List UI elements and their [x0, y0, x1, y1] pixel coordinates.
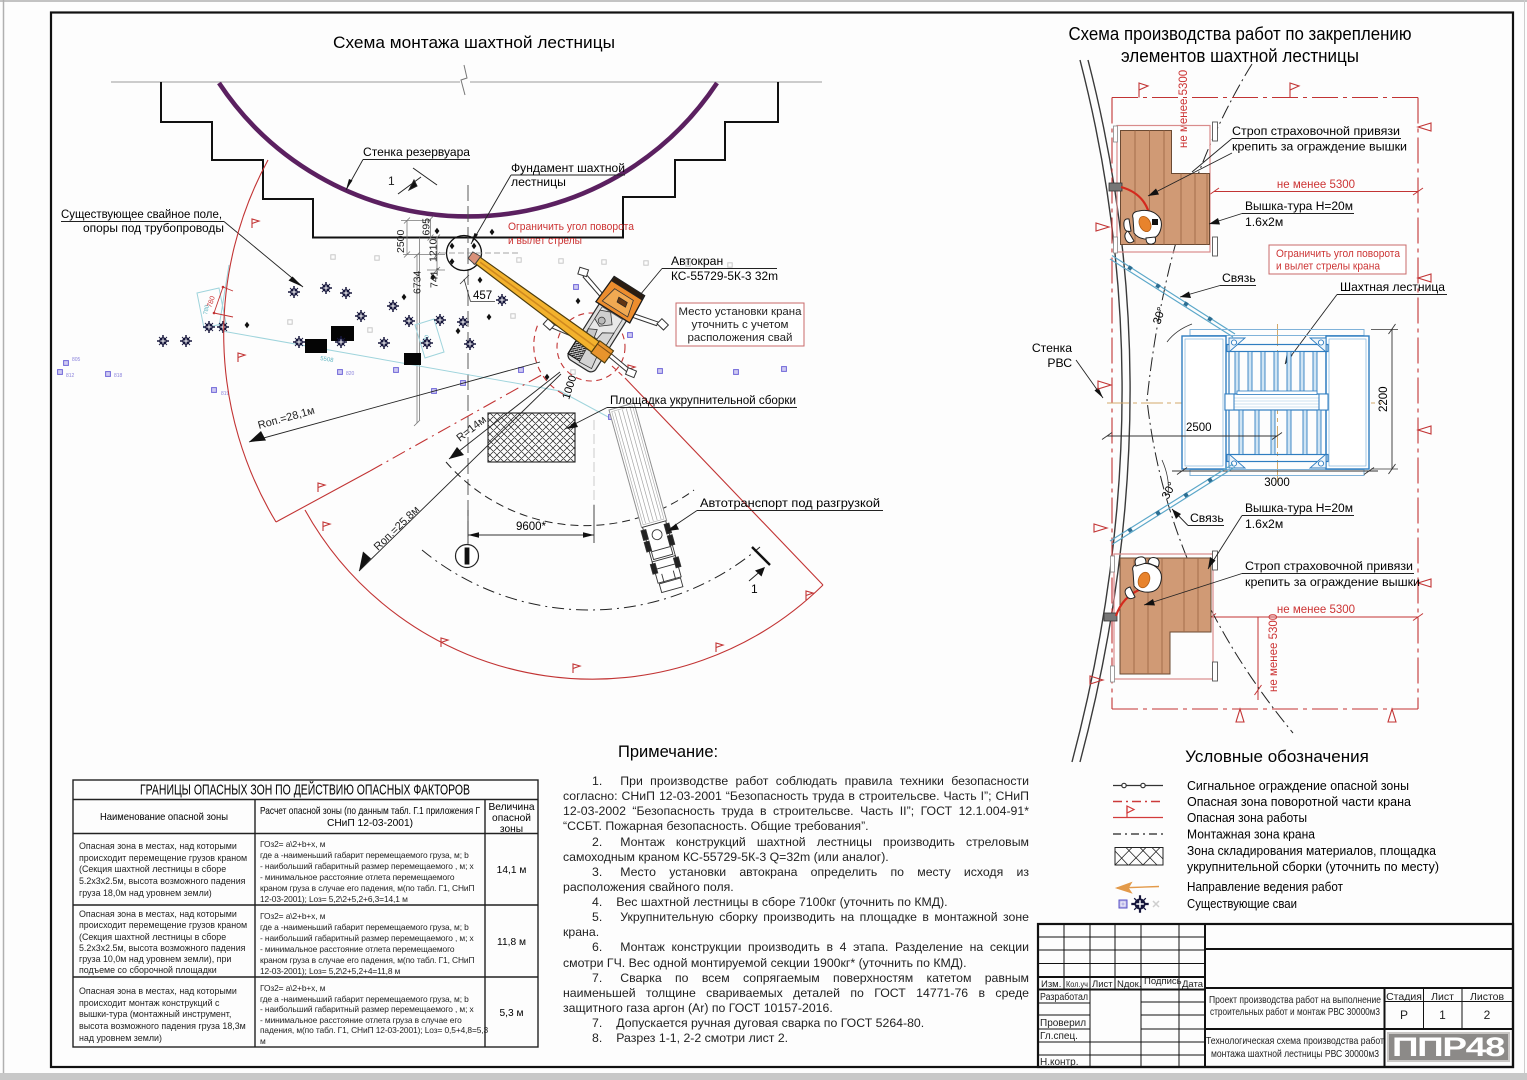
svg-text:Фундамент шахтной: Фундамент шахтной	[511, 161, 625, 175]
svg-text:Дата: Дата	[1182, 979, 1204, 990]
svg-text:Ограничить угол поворота: Ограничить угол поворота	[508, 221, 635, 233]
svg-text:2500: 2500	[1186, 422, 1212, 434]
svg-text:ППР48: ППР48	[1392, 1032, 1505, 1062]
svg-text:Автокран: Автокран	[671, 254, 723, 268]
svg-text:820: 820	[346, 371, 355, 377]
svg-text:Связь: Связь	[1190, 511, 1224, 525]
svg-text:1: 1	[751, 582, 758, 596]
svg-text:Подпись: Подпись	[1144, 976, 1182, 987]
svg-text:СНиП 12-03-2001): СНиП 12-03-2001)	[327, 818, 413, 829]
svg-text:Величина: Величина	[488, 802, 534, 813]
svg-text:Проверил: Проверил	[1040, 1018, 1086, 1029]
svg-text:крепить за ограждение вышки: крепить за ограждение вышки	[1232, 140, 1407, 154]
svg-text:Место установки крана: Место установки крана	[679, 306, 803, 318]
svg-text:Лист: Лист	[1431, 991, 1454, 1003]
svg-text:не менее 5300: не менее 5300	[1277, 179, 1355, 191]
svg-text:Кол.уч: Кол.уч	[1066, 979, 1088, 989]
svg-text:Стенка: Стенка	[1032, 341, 1072, 355]
svg-text:элементов шахтной лестницы: элементов шахтной лестницы	[1121, 46, 1359, 66]
svg-text:Лист: Лист	[1092, 979, 1113, 990]
svg-text:Условные обозначения: Условные обозначения	[1185, 747, 1369, 766]
svg-text:Вышка-тура Н=20м: Вышка-тура Н=20м	[1245, 501, 1353, 515]
svg-text:Вышка-тура Н=20м: Вышка-тура Н=20м	[1245, 199, 1353, 213]
svg-text:опоры под трубопроводы: опоры под трубопроводы	[83, 221, 224, 235]
svg-text:812: 812	[66, 373, 75, 379]
svg-text:Опасная зона работы: Опасная зона работы	[1187, 811, 1307, 825]
svg-text:Разработал: Разработал	[1040, 991, 1088, 1003]
svg-text:3000: 3000	[1264, 477, 1290, 489]
svg-text:Автотранспорт под разгрузкой: Автотранспорт под разгрузкой	[700, 496, 880, 510]
svg-text:805: 805	[72, 357, 81, 363]
svg-text:5,3 м: 5,3 м	[500, 1008, 524, 1019]
svg-text:Связь: Связь	[1222, 271, 1256, 285]
svg-text:Шахтная лестница: Шахтная лестница	[1340, 280, 1445, 294]
svg-text:1.6х2м: 1.6х2м	[1245, 215, 1283, 229]
svg-text:Сигнальное ограждение опасной: Сигнальное ограждение опасной зоны	[1187, 779, 1409, 793]
svg-text:не менее 5300: не менее 5300	[1277, 604, 1355, 616]
svg-text:1: 1	[1439, 1008, 1446, 1022]
svg-text:1: 1	[388, 174, 395, 188]
svg-text:лестницы: лестницы	[511, 175, 566, 189]
svg-text:расположения свай: расположения свай	[688, 332, 793, 344]
svg-text:Стадия: Стадия	[1386, 991, 1422, 1003]
svg-text:уточнить с учетом: уточнить с учетом	[692, 319, 789, 331]
svg-text:крепить за ограждение вышки: крепить за ограждение вышки	[1245, 575, 1420, 589]
svg-text:Зона складирования материалов,: Зона складирования материалов, площадка	[1187, 844, 1436, 858]
svg-text:Существующие сваи: Существующие сваи	[1187, 897, 1297, 911]
svg-text:Ограничить угол поворота: Ограничить угол поворота	[1276, 248, 1401, 260]
svg-text:1210: 1210	[428, 238, 440, 262]
svg-text:и вылет стрелы: и вылет стрелы	[508, 235, 582, 247]
svg-text:Строп страховочной привязи: Строп страховочной привязи	[1245, 559, 1413, 573]
svg-text:не менее 5300: не менее 5300	[1268, 614, 1280, 692]
svg-text:опасной: опасной	[492, 813, 531, 824]
svg-text:457: 457	[473, 290, 492, 302]
svg-text:Монтажная зона крана: Монтажная зона крана	[1187, 828, 1315, 842]
svg-text:Наименование опасной зоны: Наименование опасной зоны	[100, 812, 228, 823]
svg-text:Листов: Листов	[1470, 991, 1505, 1003]
svg-text:Расчет опасной зоны (по данным: Расчет опасной зоны (по данным табл. Г.1…	[260, 805, 480, 817]
svg-text:не менее 5300: не менее 5300	[1178, 70, 1190, 148]
svg-text:6734: 6734	[412, 270, 424, 294]
svg-text:Опасная зона поворотной части: Опасная зона поворотной части крана	[1187, 795, 1411, 809]
svg-text:и вылет стрелы крана: и вылет стрелы крана	[1276, 261, 1381, 273]
svg-text:монтажа шахтной лестницы РВС 3: монтажа шахтной лестницы РВС 30000м3	[1211, 1049, 1379, 1060]
svg-text:Направление ведения работ: Направление ведения работ	[1187, 880, 1343, 894]
svg-text:14,1 м: 14,1 м	[497, 865, 527, 876]
svg-text:ГРАНИЦЫ ОПАСНЫХ ЗОН ПО ДЕЙСТВИ: ГРАНИЦЫ ОПАСНЫХ ЗОН ПО ДЕЙСТВИЮ ОПАСНЫХ …	[140, 781, 470, 799]
svg-text:2: 2	[1484, 1008, 1491, 1022]
svg-text:укрупнительной сборки (уточнит: укрупнительной сборки (уточнить по месту…	[1187, 860, 1439, 874]
svg-text:Технологическая схема производ: Технологическая схема производства работ	[1206, 1035, 1384, 1047]
svg-text:695: 695	[421, 218, 433, 236]
svg-text:Проект производства работ на в: Проект производства работ на выполнение	[1209, 994, 1381, 1006]
svg-text:зоны: зоны	[500, 824, 523, 835]
svg-text:Схема монтажа шахтной лестницы: Схема монтажа шахтной лестницы	[333, 33, 615, 52]
svg-text:2200: 2200	[1378, 386, 1390, 412]
svg-text:818: 818	[114, 373, 123, 379]
svg-text:9600*: 9600*	[516, 521, 547, 533]
svg-text:Изм.: Изм.	[1041, 979, 1061, 990]
svg-text:КС-55729-5К-3 32m: КС-55729-5К-3 32m	[671, 269, 778, 283]
svg-text:Примечание:: Примечание:	[618, 743, 718, 761]
svg-text:Площадка укрупнительной сборки: Площадка укрупнительной сборки	[610, 393, 796, 407]
svg-text:2500: 2500	[395, 229, 407, 253]
svg-text:Nдок.: Nдок.	[1117, 979, 1141, 990]
svg-text:741,: 741,	[429, 268, 441, 288]
svg-text:Гл.спец.: Гл.спец.	[1040, 1031, 1078, 1042]
svg-text:строительных работ и монтаж РВ: строительных работ и монтаж РВС 30000м3	[1210, 1006, 1380, 1018]
svg-text:11,8 м: 11,8 м	[497, 937, 526, 948]
svg-text:1.6х2м: 1.6х2м	[1245, 517, 1283, 531]
svg-text:Схема производства работ по за: Схема производства работ по закреплению	[1069, 24, 1412, 44]
svg-text:Н.контр.: Н.контр.	[1040, 1057, 1079, 1068]
svg-text:Р: Р	[1400, 1008, 1408, 1022]
svg-text:Стенка резервуара: Стенка резервуара	[363, 145, 470, 159]
svg-text:РВС: РВС	[1047, 356, 1072, 370]
svg-text:Существующее свайное поле,: Существующее свайное поле,	[61, 207, 222, 221]
svg-text:Строп страховочной привязи: Строп страховочной привязи	[1232, 124, 1400, 138]
